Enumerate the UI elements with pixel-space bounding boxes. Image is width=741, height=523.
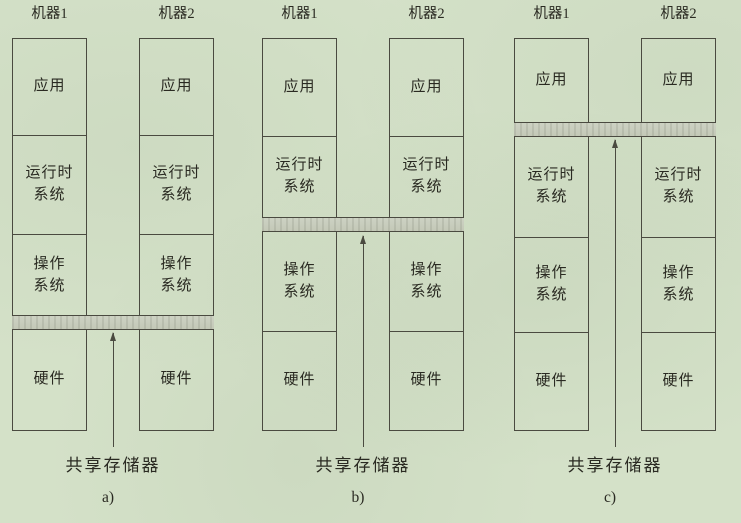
shared-memory-band [262, 217, 464, 232]
panel-caption: c) [502, 489, 718, 507]
layer-runtime-system: 运行时 系统 [642, 137, 715, 237]
layer-application: 应用 [642, 39, 715, 123]
machine-2-label: 机器2 [388, 6, 465, 23]
layer-operating-system: 操作 系统 [390, 232, 463, 331]
layer-runtime-system: 运行时 系统 [390, 136, 463, 217]
shared-memory-label: 共享存储器 [251, 451, 475, 476]
layer-operating-system: 操作 系统 [515, 237, 588, 332]
layer-hardware: 硬件 [13, 330, 86, 430]
panel-caption: a) [0, 489, 216, 507]
machine-1-label: 机器1 [11, 6, 88, 23]
shared-memory-band [514, 122, 716, 137]
layer-operating-system: 操作 系统 [140, 234, 213, 316]
layer-hardware: 硬件 [390, 331, 463, 430]
up-arrow-icon [113, 333, 114, 447]
layer-runtime-system: 运行时 系统 [140, 135, 213, 234]
shared-memory-label: 共享存储器 [1, 451, 225, 476]
panel-caption: b) [250, 489, 466, 507]
panel-c: 机器1 机器2 应用 运行时 系统 操作 系统 硬件 应用 运行时 系统 操作 … [502, 0, 732, 523]
layer-runtime-system: 运行时 系统 [515, 137, 588, 237]
machine-1-stack: 应用 运行时 系统 操作 系统 硬件 [262, 38, 337, 431]
layer-hardware: 硬件 [515, 332, 588, 430]
machine-1-stack: 应用 运行时 系统 操作 系统 硬件 [514, 38, 589, 431]
machine-2-label: 机器2 [640, 6, 717, 23]
machine-2-label: 机器2 [138, 6, 215, 23]
machine-2-stack: 应用 运行时 系统 操作 系统 硬件 [641, 38, 716, 431]
layer-application: 应用 [515, 39, 588, 123]
machine-2-stack: 应用 运行时 系统 操作 系统 硬件 [389, 38, 464, 431]
layer-operating-system: 操作 系统 [13, 234, 86, 316]
layer-application: 应用 [263, 39, 336, 136]
panel-b: 机器1 机器2 应用 运行时 系统 操作 系统 硬件 应用 运行时 系统 操作 … [250, 0, 480, 523]
layer-operating-system: 操作 系统 [642, 237, 715, 332]
machine-2-stack: 应用 运行时 系统 操作 系统 硬件 [139, 38, 214, 431]
shared-memory-label: 共享存储器 [503, 451, 727, 476]
layer-runtime-system: 运行时 系统 [13, 135, 86, 234]
panel-a: 机器1 机器2 应用 运行时 系统 操作 系统 硬件 应用 运行时 系统 操作 … [0, 0, 230, 523]
machine-1-stack: 应用 运行时 系统 操作 系统 硬件 [12, 38, 87, 431]
layer-application: 应用 [390, 39, 463, 136]
layer-hardware: 硬件 [263, 331, 336, 430]
shared-memory-band [12, 315, 214, 330]
layer-application: 应用 [13, 39, 86, 135]
layer-runtime-system: 运行时 系统 [263, 136, 336, 217]
up-arrow-icon [615, 140, 616, 447]
layer-hardware: 硬件 [140, 330, 213, 430]
layer-hardware: 硬件 [642, 332, 715, 430]
machine-1-label: 机器1 [261, 6, 338, 23]
scanned-book-page: 机器1 机器2 应用 运行时 系统 操作 系统 硬件 应用 运行时 系统 操作 … [0, 0, 741, 523]
layer-application: 应用 [140, 39, 213, 135]
up-arrow-icon [363, 236, 364, 447]
machine-1-label: 机器1 [513, 6, 590, 23]
layer-operating-system: 操作 系统 [263, 232, 336, 331]
